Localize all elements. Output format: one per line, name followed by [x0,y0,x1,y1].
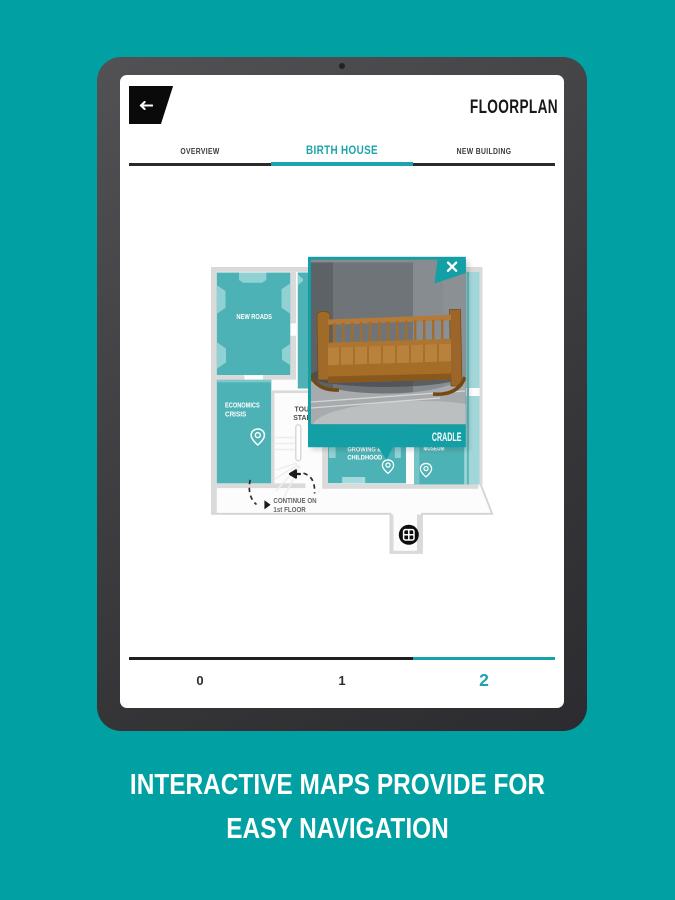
svg-text:CRADLE: CRADLE [432,430,462,444]
svg-text:CRISIS: CRISIS [225,412,246,419]
svg-text:ECONOMICS: ECONOMICS [225,403,260,410]
svg-text:CHILDHOOD: CHILDHOOD [347,454,382,461]
svg-text:1st FLOOR: 1st FLOOR [273,505,306,514]
svg-text:CONTINUE ON: CONTINUE ON [273,496,316,505]
svg-text:NEW ROADS: NEW ROADS [236,314,272,321]
